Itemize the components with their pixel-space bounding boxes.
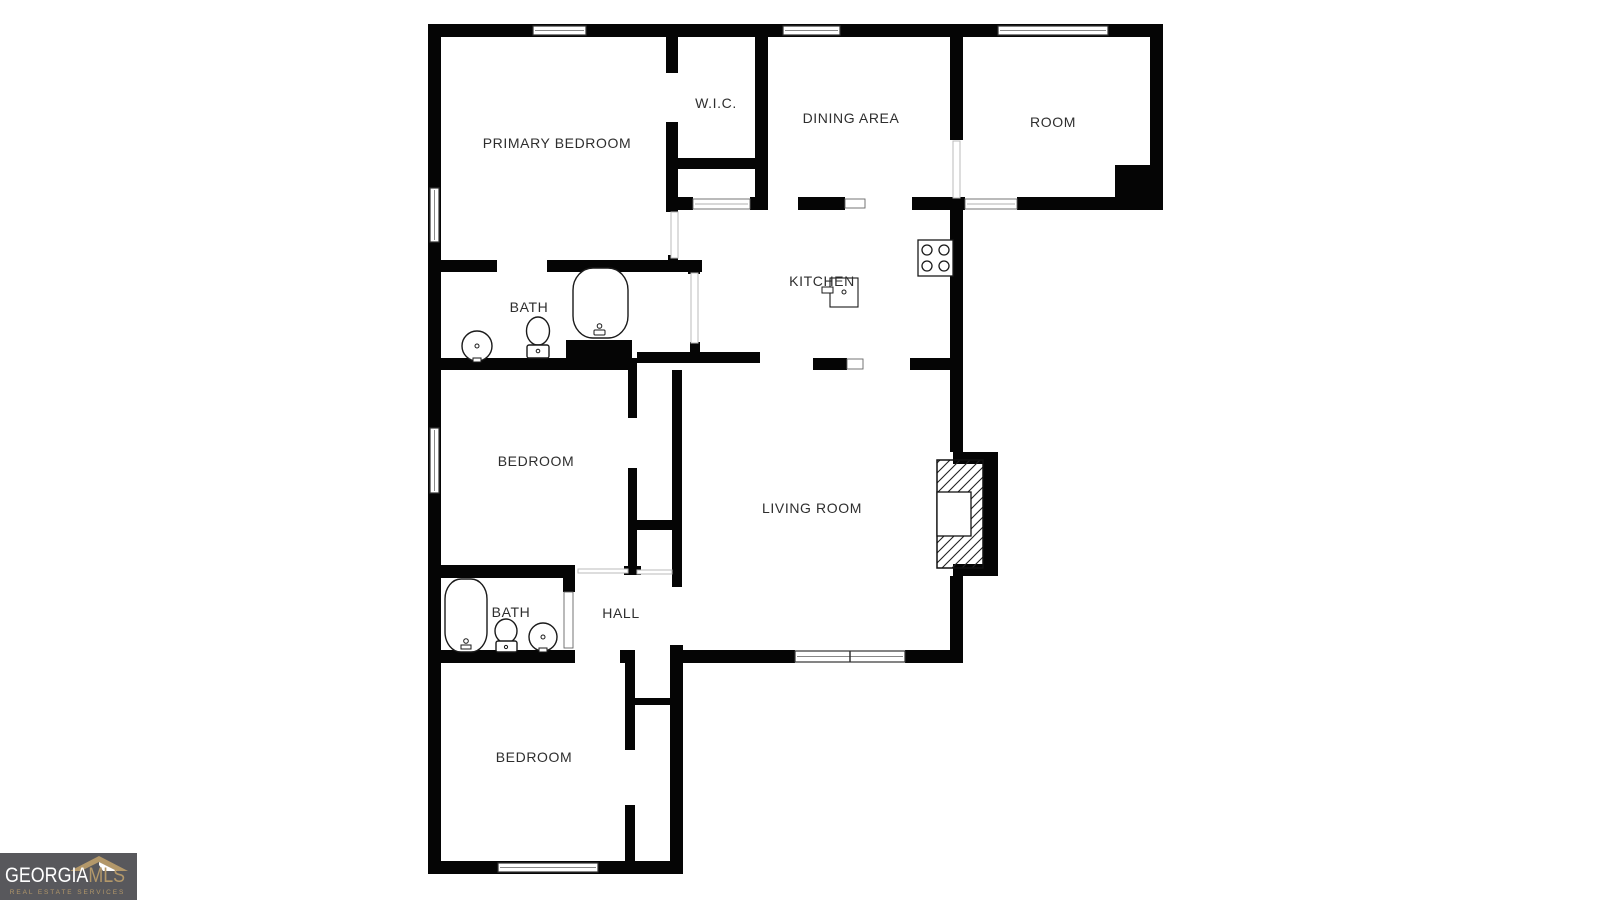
window [783, 26, 840, 35]
sink [462, 331, 492, 362]
room-label-dining-area: DINING AREA [803, 110, 900, 126]
doorway-opening [637, 570, 672, 574]
door [845, 199, 865, 208]
toilet [495, 619, 517, 652]
doorway-opening [671, 212, 678, 258]
doorway-opening [578, 569, 628, 573]
room-label-bath-primary: BATH [510, 299, 549, 315]
firebox [937, 492, 971, 536]
door [564, 592, 573, 648]
bathtub [573, 268, 628, 338]
window [498, 863, 598, 872]
door [847, 359, 863, 369]
windows [430, 26, 1108, 872]
logo-brand-primary: GEORGIA [5, 864, 88, 887]
door [693, 199, 750, 209]
room-label-bedroom-bottom: BEDROOM [496, 749, 573, 765]
room-label-bedroom-middle: BEDROOM [498, 453, 575, 469]
stove [918, 240, 953, 276]
room-label-room: ROOM [1030, 114, 1076, 130]
logo-brand-secondary: MLS [88, 864, 125, 887]
floor-plan-drawing [0, 0, 1600, 900]
window [795, 651, 905, 662]
room-label-bath-hall: BATH [492, 604, 531, 620]
toilet [527, 317, 550, 358]
window [998, 26, 1108, 35]
window [430, 428, 439, 493]
floor-plan-page: PRIMARY BEDROOM W.I.C. DINING AREA ROOM … [0, 0, 1600, 900]
fireplace [937, 452, 998, 576]
doorway-opening [953, 141, 960, 198]
chimney-block [1115, 165, 1163, 210]
exterior-walls [428, 24, 1163, 874]
room-label-hall: HALL [602, 605, 639, 621]
sink [529, 623, 557, 652]
window [533, 26, 586, 35]
logo-tagline: REAL ESTATE SERVICES [0, 889, 135, 896]
doorway-opening [691, 273, 698, 343]
bathtub [445, 579, 487, 652]
room-label-primary-bedroom: PRIMARY BEDROOM [483, 135, 632, 151]
room-label-kitchen: KITCHEN [789, 273, 855, 289]
logo-wordmark: GEORGIAMLS [5, 865, 125, 887]
door [965, 199, 1017, 209]
window [430, 188, 439, 242]
georgia-mls-logo: GEORGIAMLS REAL ESTATE SERVICES [0, 853, 137, 900]
room-label-wic: W.I.C. [695, 95, 737, 111]
room-label-living-room: LIVING ROOM [762, 500, 862, 516]
